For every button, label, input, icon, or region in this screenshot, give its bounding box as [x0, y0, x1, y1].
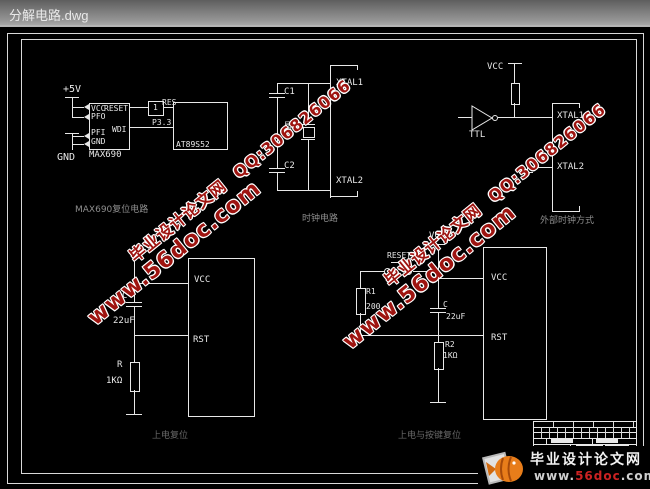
mcu-edge	[552, 211, 580, 212]
mcu-edge	[579, 103, 580, 108]
title-block-line	[546, 438, 547, 444]
resistor-body	[130, 362, 140, 392]
dwg-viewer-canvas[interactable]: 分解电路.dwg +5V GND VCC RESET PFO PFI GND W…	[0, 0, 650, 489]
capacitor-plate	[269, 93, 285, 94]
label-c-value: 22uF	[113, 317, 135, 326]
pin-label-gnd: GND	[91, 138, 105, 146]
wire	[277, 83, 278, 93]
vcc-rail	[508, 63, 522, 64]
section-title-por: 上电复位	[152, 432, 188, 441]
wire	[72, 136, 84, 137]
wire	[163, 107, 173, 108]
wire	[360, 271, 361, 288]
section-title-max690: MAX690复位电路	[75, 206, 148, 215]
wire	[277, 190, 330, 191]
label-r: R	[117, 361, 122, 370]
wire	[134, 335, 188, 336]
site-logo: 毕业设计论文网 www.56doc.com	[478, 446, 650, 489]
section-title-key-reset: 上电与按键复位	[398, 432, 461, 441]
wire	[514, 103, 515, 117]
site-logo-name: 毕业设计论文网	[530, 449, 642, 469]
wire	[438, 368, 439, 402]
mcu-edge	[357, 65, 358, 70]
wire	[129, 127, 173, 128]
wire	[360, 335, 483, 336]
mcu-edge	[357, 191, 358, 196]
pin-label-reset: RESET	[104, 105, 128, 113]
site-logo-url: www.56doc.com	[534, 469, 650, 483]
ground-symbol	[126, 414, 142, 415]
label-ttl: TTL	[469, 131, 485, 140]
chip-name-max690: MAX690	[89, 151, 122, 160]
title-block-cell-filled	[551, 439, 573, 443]
wire	[129, 107, 148, 108]
title-block-cell-filled	[596, 439, 618, 443]
mcu-edge	[552, 103, 580, 104]
mcu-edge	[330, 196, 358, 197]
mcu-edge	[579, 206, 580, 211]
label-r2-value: 1KΩ	[443, 352, 457, 360]
label-plus5v: +5V	[63, 85, 81, 95]
ground-symbol	[430, 402, 446, 403]
chip-name-at89s52: AT89S52	[176, 141, 210, 149]
site-logo-url-tld: .com	[621, 469, 650, 483]
site-logo-url-domain: 56doc	[575, 469, 621, 483]
pin-label-p33: P3.3	[152, 119, 171, 127]
title-block-line	[534, 438, 636, 439]
wire	[498, 117, 552, 118]
mcu-edge	[330, 65, 358, 66]
wire	[438, 312, 439, 335]
wire	[134, 335, 135, 362]
pin-label-pfo: PFO	[91, 113, 105, 121]
wire	[134, 306, 135, 335]
wire	[514, 63, 515, 83]
wire	[277, 83, 330, 84]
pin-label-rst: RST	[491, 334, 507, 343]
title-block-line	[592, 438, 593, 444]
label-r-value: 1KΩ	[106, 377, 122, 386]
resistor-body	[511, 83, 520, 105]
buffer-label: 1	[153, 104, 158, 112]
wire	[72, 144, 84, 145]
pin-label-rst: RST	[193, 336, 209, 345]
label-gnd: GND	[57, 153, 75, 163]
section-title-clock: 时钟电路	[302, 215, 338, 224]
pin-label-pfi: PFI	[91, 129, 105, 137]
window-title: 分解电路.dwg	[9, 5, 88, 24]
window-titlebar[interactable]: 分解电路.dwg	[0, 0, 650, 27]
wire	[72, 107, 84, 108]
wire	[438, 335, 439, 342]
label-c: C	[443, 301, 448, 309]
label-vcc: VCC	[487, 63, 503, 72]
pin-label-xtal2: XTAL2	[336, 177, 363, 186]
pin-label-vcc: VCC	[491, 274, 507, 283]
inverter-gate-icon	[470, 104, 500, 132]
wire	[72, 117, 84, 118]
section-title-ext-clock: 外部时钟方式	[540, 217, 594, 226]
label-c-value: 22uF	[446, 313, 465, 321]
label-c1: C1	[284, 88, 295, 97]
pin-label-wdi: WDI	[112, 126, 126, 134]
site-logo-url-www: www.	[534, 469, 575, 483]
wire	[134, 390, 135, 414]
title-block-cells	[534, 432, 636, 438]
label-r2: R2	[445, 341, 455, 349]
pin-label-vcc: VCC	[194, 276, 210, 285]
site-logo-icon	[480, 448, 526, 488]
